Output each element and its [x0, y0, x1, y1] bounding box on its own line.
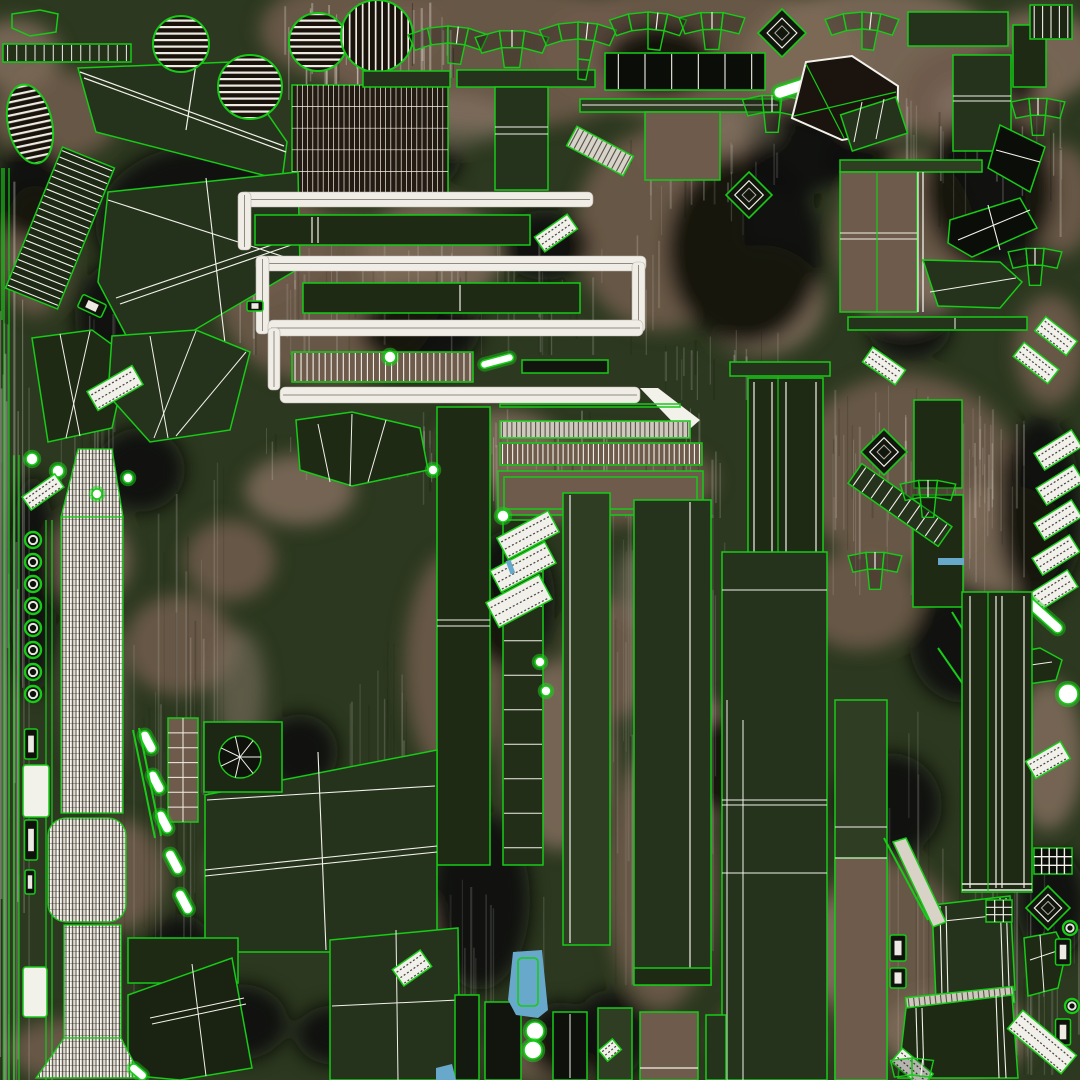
cyl-hlines [64, 925, 121, 1038]
island-rail-rect-a [255, 215, 530, 245]
island-bar-tl [3, 44, 131, 62]
fan-drop-quad [920, 497, 935, 517]
dot-big-right [1056, 682, 1080, 706]
island-bc4 [640, 1012, 698, 1080]
island-pair-b [962, 592, 1032, 892]
nut-5 [25, 620, 41, 636]
island-pair-b [962, 592, 1032, 892]
island-rail-strip-2 [500, 443, 702, 465]
island-rail-strip-2 [500, 443, 702, 465]
stock-rib-grid [986, 900, 1012, 922]
nut-4 [25, 598, 41, 614]
tube-bar-3 [268, 320, 643, 336]
nut-7 [25, 664, 41, 680]
can-band [894, 972, 901, 983]
island-rail-strip-1 [500, 421, 690, 438]
island-bar-right-top [840, 160, 982, 172]
fan-quad [428, 26, 448, 45]
dot-a [24, 451, 40, 467]
fan-quad [558, 22, 578, 41]
island-tbar-1 [363, 71, 450, 87]
white-rect-1 [23, 765, 49, 817]
strip-s6 [722, 552, 827, 1080]
dot-d [121, 471, 135, 485]
dot-g [497, 510, 509, 522]
tube-stub-1 [238, 192, 251, 250]
island-black-comb [605, 53, 765, 90]
tube-stub-2l [256, 256, 269, 334]
dot-f [426, 463, 440, 477]
can-band [28, 875, 32, 888]
white-rect-2 [23, 967, 47, 1017]
dot-d [123, 473, 133, 483]
island-rail-rect-a [255, 215, 530, 245]
island-tbar-2 [457, 70, 595, 87]
island-bc0 [455, 995, 479, 1080]
island-rt-stripes [1030, 5, 1072, 39]
dot-k [522, 1039, 544, 1061]
nut-2 [25, 554, 41, 570]
island-rail-rect-b [303, 283, 580, 313]
nut-r2 [1065, 999, 1079, 1013]
nut-r1 [1063, 921, 1077, 935]
dot-h [535, 657, 545, 667]
island-disc-1 [153, 16, 209, 72]
fan-drop-quad [502, 48, 523, 68]
island-disc-3 [289, 13, 347, 71]
blue-dash [938, 558, 964, 565]
island-bc5 [706, 1015, 726, 1080]
can-l1 [25, 729, 38, 759]
dot-a [26, 453, 38, 465]
fan-quad [891, 1058, 912, 1077]
fan-drop-quad [1031, 115, 1046, 135]
tube-bar-1 [240, 192, 593, 207]
keyboard-br [1034, 848, 1072, 874]
dot-k [524, 1041, 542, 1059]
strip-s4-cap [634, 968, 711, 985]
island-trunk-2 [645, 112, 720, 180]
dot-i [541, 686, 551, 696]
fan-quad [628, 12, 648, 31]
dot-e [384, 351, 396, 363]
cyl-hlines [61, 517, 123, 813]
strip-s1 [437, 407, 490, 865]
screenshot-root [0, 0, 1080, 1080]
dot-g [495, 508, 511, 524]
tube-stub-34 [268, 328, 280, 390]
island-spoke-wheel [219, 736, 261, 778]
nut-1 [25, 532, 41, 548]
tube-bar-4 [280, 387, 640, 403]
barrel-bulge [48, 818, 126, 922]
stock-rib-grid [986, 900, 1012, 922]
can-band [28, 829, 34, 851]
nut-r2 [1065, 999, 1079, 1013]
island-bar-right-top [840, 160, 982, 172]
island-dark-bar [522, 360, 608, 373]
nut-6 [25, 642, 41, 658]
can-band [1060, 1025, 1067, 1040]
strip-s1 [437, 407, 490, 865]
keyboard-br [1034, 848, 1072, 874]
dot-f [428, 465, 438, 475]
dot-c [90, 487, 104, 501]
island-r3 [914, 400, 962, 488]
nut-3 [25, 576, 41, 592]
nut-6 [25, 642, 41, 658]
can-r1 [890, 935, 906, 961]
nut-8 [25, 686, 41, 702]
island-bar-above-pairc [730, 362, 830, 376]
dot-j [526, 1022, 544, 1040]
island-dark-bar [522, 360, 608, 373]
can-band [28, 736, 34, 753]
dot-c [92, 489, 102, 499]
fan-drop-quad [868, 569, 883, 589]
nut-7 [25, 664, 41, 680]
can-band [894, 941, 901, 956]
dot-i [539, 684, 553, 698]
can-r2 [890, 968, 906, 988]
island-rt-a [908, 12, 1008, 46]
island-trunk-2 [645, 112, 720, 180]
fan-drop-quad [764, 112, 780, 132]
island-bc5 [706, 1015, 726, 1080]
dot-e [382, 349, 398, 365]
island-brown-ladder [168, 718, 198, 822]
strip-s4 [634, 500, 711, 985]
island-square-right [840, 172, 917, 312]
can-l3 [25, 870, 35, 894]
fan-drop-quad [703, 30, 721, 50]
strip-s7-brown [835, 858, 887, 1080]
island-black-comb [605, 53, 765, 90]
island-tbar-1 [363, 71, 450, 87]
island-trunk-1 [495, 87, 548, 190]
island-bar-tl [3, 44, 131, 62]
island-bar-r2 [848, 317, 1027, 330]
blue-dash [938, 558, 964, 565]
barrel-shaft-1 [61, 517, 123, 813]
nut-1 [25, 532, 41, 548]
nut-4 [25, 598, 41, 614]
island-rt-a [908, 12, 1008, 46]
pad-blue [508, 950, 548, 1018]
island-bar-above-pairc [730, 362, 830, 376]
island-bc0 [455, 995, 479, 1080]
white-rect-1 [23, 765, 49, 817]
island-trunk-1 [495, 87, 548, 190]
nut-r1 [1063, 921, 1077, 935]
island-rail-strip-1 [500, 421, 690, 438]
can-tl2 [247, 301, 263, 311]
strip-s4-cap [634, 968, 711, 985]
island-disc-2 [218, 55, 282, 119]
dot-h [533, 655, 547, 669]
dot-big-right [1058, 684, 1078, 704]
nut-8 [25, 686, 41, 702]
can-l2 [25, 820, 38, 860]
island-bc4 [640, 1012, 698, 1080]
nut-2 [25, 554, 41, 570]
can-r3 [1056, 939, 1071, 965]
nut-3 [25, 576, 41, 592]
island-rail-rect-b [303, 283, 580, 313]
can-band [251, 303, 258, 309]
white-rect-2 [23, 967, 47, 1017]
can-band [1060, 945, 1067, 960]
tube-bar-2 [256, 256, 646, 271]
island-bar-r2 [848, 317, 1027, 330]
fan-br [891, 1058, 934, 1080]
island-tbar-2 [457, 70, 595, 87]
strip-s4 [634, 500, 711, 985]
cyl-hlines [48, 818, 126, 922]
uv-texture-atlas [0, 0, 1080, 1080]
island-grid-block [292, 85, 448, 193]
strip-s7-brown [835, 858, 887, 1080]
island-square-right [840, 172, 917, 312]
island-quad-bc [330, 928, 460, 1080]
island-r3 [914, 400, 962, 488]
fan-drop-quad [1028, 265, 1043, 285]
camo-patch [185, 520, 275, 600]
nut-5 [25, 620, 41, 636]
fan-quad [843, 12, 862, 31]
barrel-shaft-2 [64, 925, 121, 1038]
strip-s6 [722, 552, 827, 1080]
island-disc-4 [341, 0, 413, 72]
